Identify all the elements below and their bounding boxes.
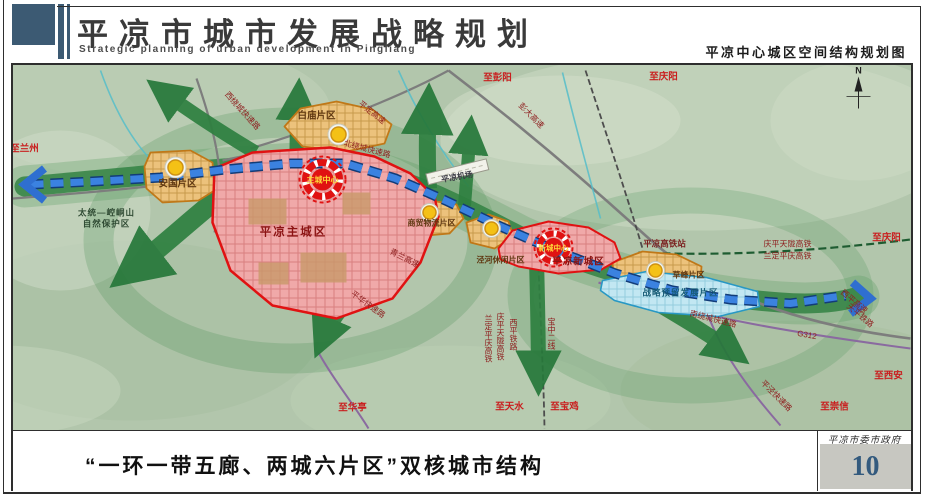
map-label-qingping-tianlong-hsr-south: 庆平天陇高铁 <box>496 311 505 361</box>
header-accent-bar <box>58 4 64 59</box>
planning-document-page: 平凉市城市发展战略规划 Strategic planning of urban … <box>0 0 925 500</box>
map-label-to-tianshui: 至天水 <box>495 400 524 412</box>
page-number: 10 <box>852 451 880 483</box>
map-label-landing-pingqing-hsr: 兰定平庆高铁 <box>763 250 811 260</box>
structure-caption: “一环一带五廊、两城六片区”双核城市结构 <box>85 450 544 480</box>
map-label-to-baoji: 至宝鸡 <box>550 400 579 412</box>
map-label-to-xian: 至西安 <box>874 369 903 381</box>
header-accent-bar-thin <box>67 4 70 59</box>
map-label-trade-logistics-district: 商贸物流片区 <box>407 217 455 227</box>
map-label-to-qingyang-north: 至庆阳 <box>649 70 678 82</box>
page-border-right-outer <box>920 6 921 493</box>
page-border-bottom <box>3 492 921 494</box>
map-label-main-city-center: 主城中心 <box>306 174 338 184</box>
map-label-baimiao-district: 白庙片区 <box>297 109 336 121</box>
map-label-pingliang-new-city: 平凉新城区 <box>552 255 605 267</box>
map-label-landing-pingqing-hsr-south: 兰定平庆高铁 <box>484 313 493 363</box>
map-label-nature-reserve-line1: 太统—崆峒山 <box>76 207 134 217</box>
page-border-top <box>57 6 920 7</box>
map-label-to-qingyang-east: 至庆阳 <box>872 231 901 243</box>
map-label-to-pengyang: 至彭阳 <box>483 71 512 83</box>
map-subtitle: 平凉中心城区空间结构规划图 <box>705 42 907 61</box>
map-label-xiping-railway: 西平铁路 <box>509 318 518 350</box>
caofeng-node[interactable] <box>646 261 664 279</box>
map-label-pingliang-main-city: 平凉主城区 <box>259 224 327 238</box>
header-accent-square <box>12 4 55 45</box>
map-label-new-city-center: 新城中心 <box>538 242 568 252</box>
map-label-jinghe-leisure-district: 泾河休闲片区 <box>476 254 524 264</box>
map-label-to-chongxin: 至崇信 <box>820 400 849 412</box>
map-label-pingliang-hsr-station: 平凉高铁站 <box>643 238 686 248</box>
map-label-baozhong-line-2: 宝中二线 <box>547 316 556 349</box>
page-number-box: 10 <box>820 444 911 489</box>
page-title-english: Strategic planning of urban development … <box>79 44 416 55</box>
anguo-node[interactable] <box>165 157 186 178</box>
map-label-caofeng-district: 草峰片区 <box>672 269 704 279</box>
map-label-strategic-reserve-district: 战略预留发展片区 <box>642 287 718 297</box>
map-label-qingping-tianlong-hsr: 庆平天陇高铁 <box>763 238 811 248</box>
map-label-to-lanzhou: 至兰州 <box>13 142 39 154</box>
planning-map[interactable]: N 至兰州至彭阳至庆阳至庆阳至西安至崇信至华亭至天水至宝鸡西绕城快速路北绕城快速… <box>13 65 911 430</box>
north-label: N <box>855 65 862 75</box>
page-border-left-outer <box>3 0 4 494</box>
map-label-nature-reserve-line2: 自然保护区 <box>82 218 130 228</box>
jinghe-node[interactable] <box>482 219 500 237</box>
map-label-to-huating: 至华亭 <box>338 401 367 413</box>
map-label-anguo-district: 安国片区 <box>158 177 197 189</box>
map-border-right <box>911 63 913 491</box>
